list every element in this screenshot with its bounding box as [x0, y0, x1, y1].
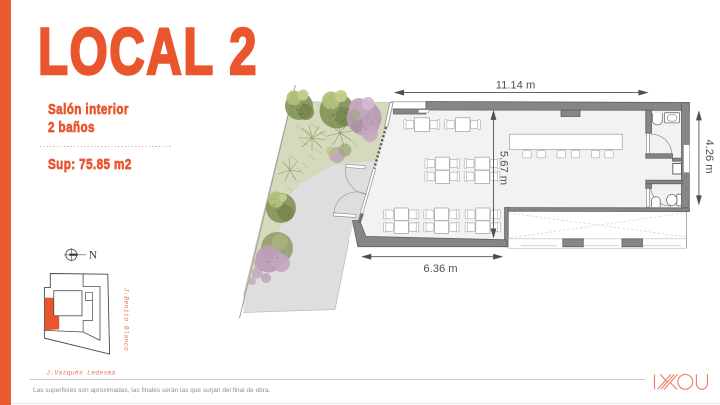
svg-text:11.14 m: 11.14 m — [496, 80, 536, 92]
svg-text:J.Benito Blanco: J.Benito Blanco — [123, 288, 130, 352]
svg-text:N: N — [89, 249, 98, 261]
svg-text:5.67 m: 5.67 m — [498, 151, 510, 185]
svg-text:4.26 m: 4.26 m — [703, 139, 715, 173]
svg-text:J.Vazqués Ledesma: J.Vazqués Ledesma — [46, 370, 115, 377]
svg-text:6.36 m: 6.36 m — [423, 263, 457, 275]
